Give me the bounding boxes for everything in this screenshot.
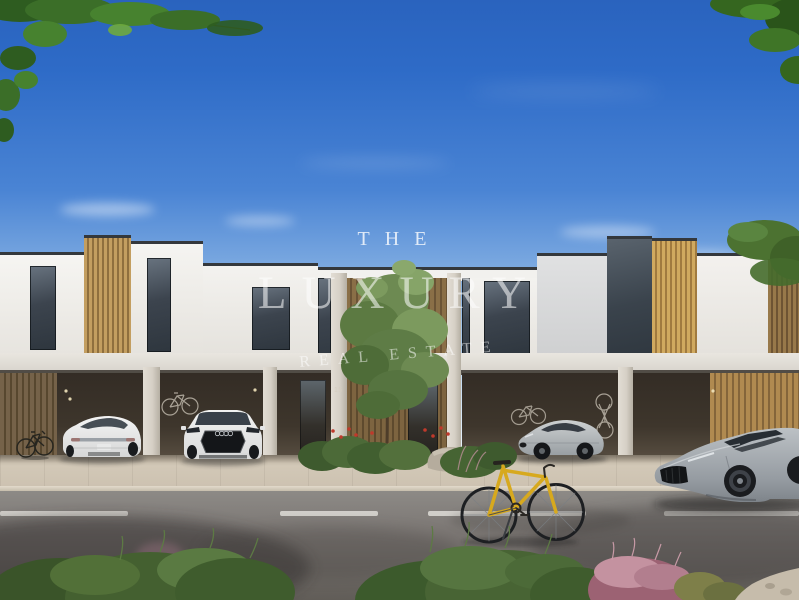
pillar <box>447 273 461 462</box>
lane-marking <box>664 511 799 516</box>
pillar <box>143 367 160 462</box>
real-estate-photo: THE LUXURY REAL ESTATE 15 <box>0 0 799 600</box>
cloud <box>60 203 155 216</box>
window <box>484 281 530 355</box>
window <box>252 287 290 350</box>
road <box>0 491 799 600</box>
ground-wood-wall <box>0 373 57 462</box>
carport-bay <box>160 373 263 462</box>
wood-slat-panel <box>84 235 131 358</box>
lane-marking <box>0 511 128 516</box>
cloud <box>300 158 450 168</box>
carport-canopy <box>0 353 799 375</box>
building-base-shadow <box>0 455 799 463</box>
window <box>30 266 56 350</box>
entry-door <box>408 382 438 456</box>
pillar <box>618 367 633 462</box>
center-wood-wall-upper <box>346 278 448 355</box>
cloud <box>470 85 660 97</box>
entry-recess <box>633 373 710 462</box>
wood-slat-panel <box>652 238 697 358</box>
lane-marking <box>280 511 378 516</box>
carport-bay <box>57 373 143 462</box>
pillar <box>263 367 277 462</box>
pillar <box>331 273 347 462</box>
glazed-dark-tower <box>607 236 652 358</box>
ground-wood-wall <box>710 373 799 462</box>
entry-door <box>300 380 326 456</box>
window <box>147 258 171 352</box>
house-number: 15 <box>334 387 343 394</box>
lane-marking <box>428 511 586 516</box>
carport-bay <box>462 373 520 462</box>
carport-bay <box>520 373 618 462</box>
cloud <box>225 216 295 226</box>
